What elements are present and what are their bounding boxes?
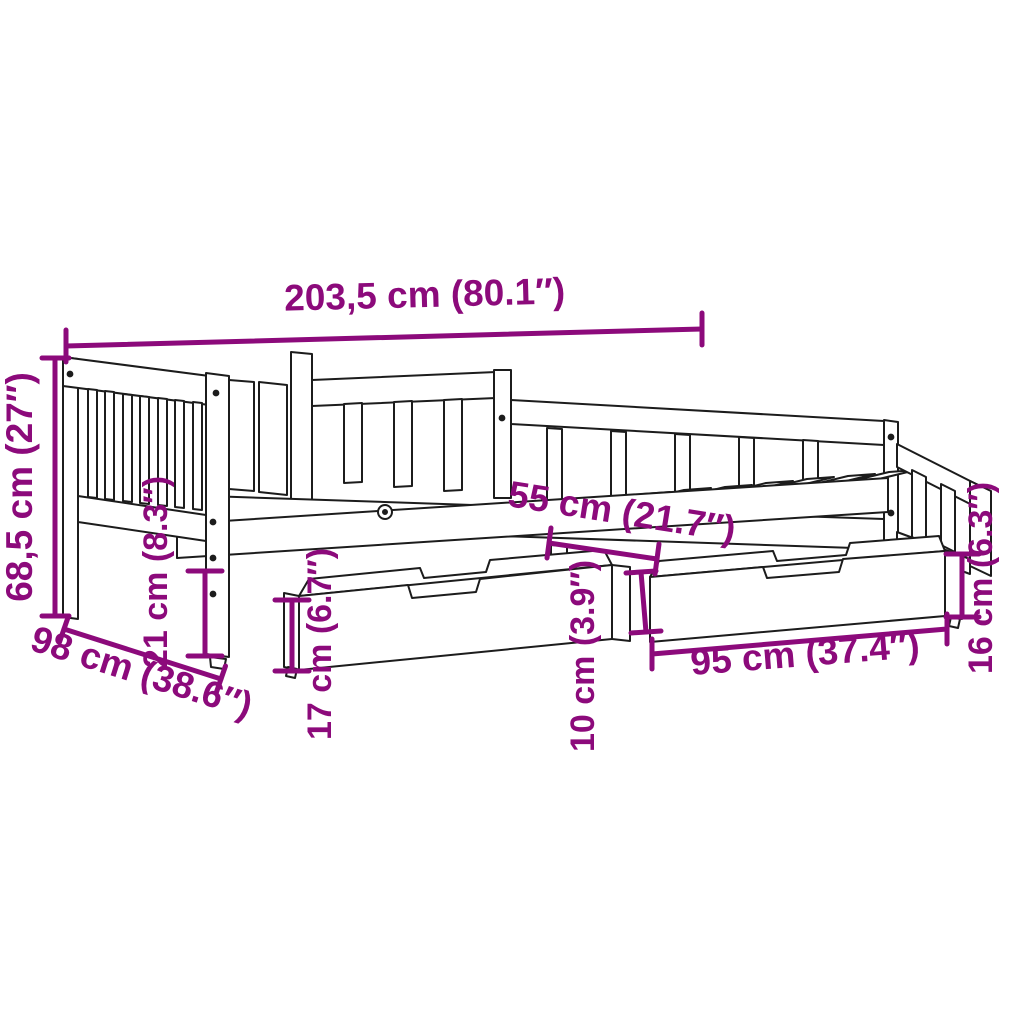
wide-board — [229, 380, 254, 491]
screw-dot — [211, 592, 216, 597]
headboard-back-post — [63, 357, 78, 619]
panel-post — [291, 352, 312, 502]
screw-dot — [68, 372, 73, 377]
dimension-diagram: 203,5 cm (80.1″) 68,5 cm (27″) 98 cm (38… — [0, 0, 1024, 1024]
headboard-slat — [123, 394, 132, 502]
screw-dot — [211, 520, 216, 525]
backrest-middle-panel — [229, 352, 511, 502]
headboard-slat — [175, 400, 184, 508]
dim-label-drawer-gap-height: 10 cm (3.9″) — [564, 560, 602, 752]
panel-post — [494, 370, 511, 498]
headboard-slat — [105, 391, 114, 500]
wide-board — [259, 382, 287, 495]
dim-label-total-length: 203,5 cm (80.1″) — [284, 270, 566, 318]
screw-dot — [211, 556, 216, 561]
dim-label-drawer-height: 17 cm (6.7″) — [301, 548, 339, 740]
screw-dot — [889, 435, 894, 440]
panel-slat — [444, 399, 462, 491]
drawer-side-panel — [945, 551, 962, 619]
back-rail — [511, 400, 884, 445]
panel-slat — [344, 403, 362, 483]
dim-label-drawer-side-height: 16 cm (6.3″) — [962, 482, 1000, 674]
pullout-knob-center — [383, 510, 387, 514]
screw-dot — [500, 416, 505, 421]
dim-line-total-length — [66, 313, 702, 362]
dim-label-leg-clearance: 21 cm (8.3″) — [137, 476, 175, 668]
drawer-side-panel — [612, 565, 630, 641]
panel-slat — [394, 401, 412, 487]
headboard-front-post — [206, 373, 229, 657]
arm-slat — [941, 484, 955, 552]
headboard-slat — [88, 389, 97, 498]
headboard-slat — [193, 402, 202, 510]
screw-dot — [214, 391, 219, 396]
arm-slat — [912, 470, 926, 544]
dim-label-total-height: 68,5 cm (27″) — [0, 372, 40, 602]
screw-dot — [889, 511, 894, 516]
